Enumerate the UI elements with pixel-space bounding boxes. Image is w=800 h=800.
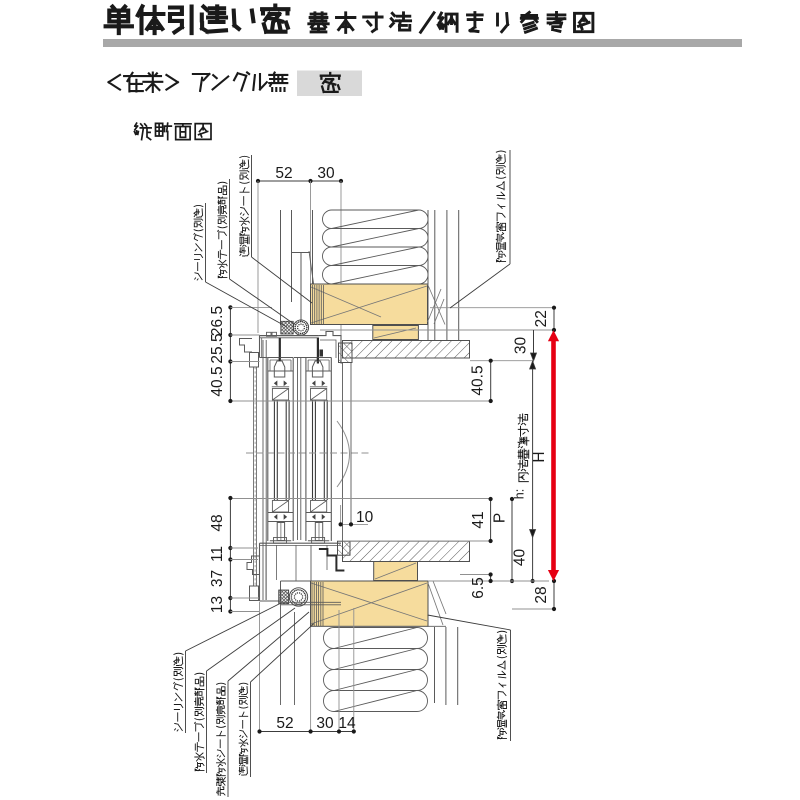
svg-text:40.5: 40.5 — [209, 366, 226, 396]
svg-text:52: 52 — [275, 165, 292, 182]
svg-text:h:: h: — [513, 489, 527, 499]
svg-text:30: 30 — [316, 715, 334, 732]
svg-text:14: 14 — [338, 715, 356, 732]
svg-text:37: 37 — [209, 570, 226, 587]
svg-text:10: 10 — [356, 509, 374, 526]
svg-text:26.5: 26.5 — [209, 306, 226, 336]
svg-text:30: 30 — [317, 165, 335, 182]
svg-text:25.5: 25.5 — [209, 333, 226, 363]
svg-text:11: 11 — [209, 546, 226, 562]
svg-text:6.5: 6.5 — [470, 577, 487, 599]
svg-text:22: 22 — [533, 310, 550, 327]
svg-text:52: 52 — [276, 715, 293, 732]
svg-text:P: P — [492, 513, 509, 523]
svg-text:40.5: 40.5 — [470, 365, 487, 395]
svg-text:30: 30 — [513, 337, 530, 355]
svg-text:41: 41 — [470, 511, 487, 528]
svg-text:H: H — [531, 451, 548, 462]
svg-text:40: 40 — [512, 549, 529, 567]
svg-text:48: 48 — [209, 514, 226, 531]
svg-text:28: 28 — [533, 586, 550, 603]
svg-text:13: 13 — [209, 596, 226, 613]
